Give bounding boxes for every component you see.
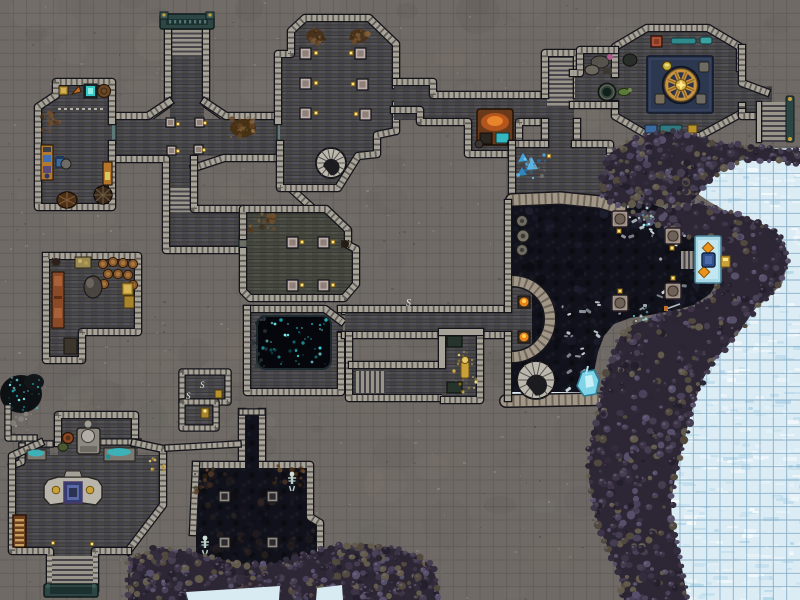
svg-text:S: S	[406, 298, 411, 309]
svg-text:S: S	[200, 380, 205, 390]
svg-text:S: S	[186, 391, 191, 401]
